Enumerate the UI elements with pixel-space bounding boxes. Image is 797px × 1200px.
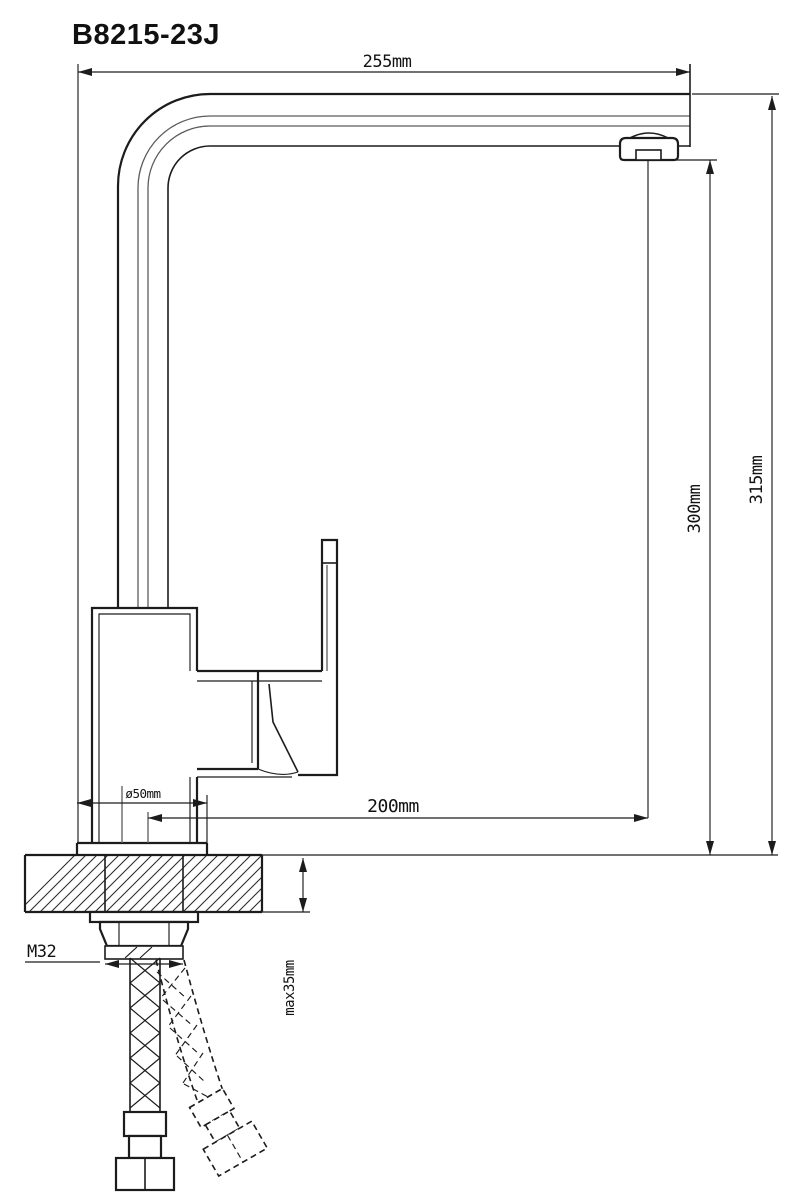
model-number-label: B8215-23J xyxy=(72,19,220,51)
max-counter-thickness-label: max35mm xyxy=(282,960,298,1016)
handle-lever xyxy=(258,540,337,775)
spout-height-label: 300mm xyxy=(685,484,705,533)
mounting-washer xyxy=(90,912,198,922)
threaded-shank xyxy=(105,946,183,959)
base-diameter-label: ø50mm xyxy=(125,786,160,801)
dimension-spout-reach: 200mm xyxy=(148,160,648,822)
dimension-base-diameter: ø50mm xyxy=(77,786,207,843)
dimension-max-counter-thickness: max35mm xyxy=(282,858,307,1016)
hose-end-fitting-left xyxy=(116,1112,174,1190)
spout-width-label: 255mm xyxy=(363,52,412,72)
countertop-section xyxy=(14,854,778,916)
dimension-spout-height: 300mm xyxy=(660,160,717,855)
dimension-overall-height: 315mm xyxy=(692,94,779,855)
mounting-hole-edges xyxy=(105,856,183,911)
mounting-hardware xyxy=(90,912,198,959)
spout-reach-label: 200mm xyxy=(367,796,419,817)
spout-outline xyxy=(118,64,690,608)
technical-drawing-sheet: B8215-23J xyxy=(0,0,797,1200)
supply-hose-right xyxy=(156,960,267,1176)
overall-height-label: 315mm xyxy=(747,455,767,504)
mounting-thread-label: M32 xyxy=(27,942,56,962)
faucet-drawing: B8215-23J xyxy=(0,0,797,1200)
mounting-nut xyxy=(100,922,188,946)
dimension-spout-width: 255mm xyxy=(78,52,690,843)
aerator xyxy=(620,133,678,160)
hose-end-fitting-right xyxy=(182,1084,267,1176)
